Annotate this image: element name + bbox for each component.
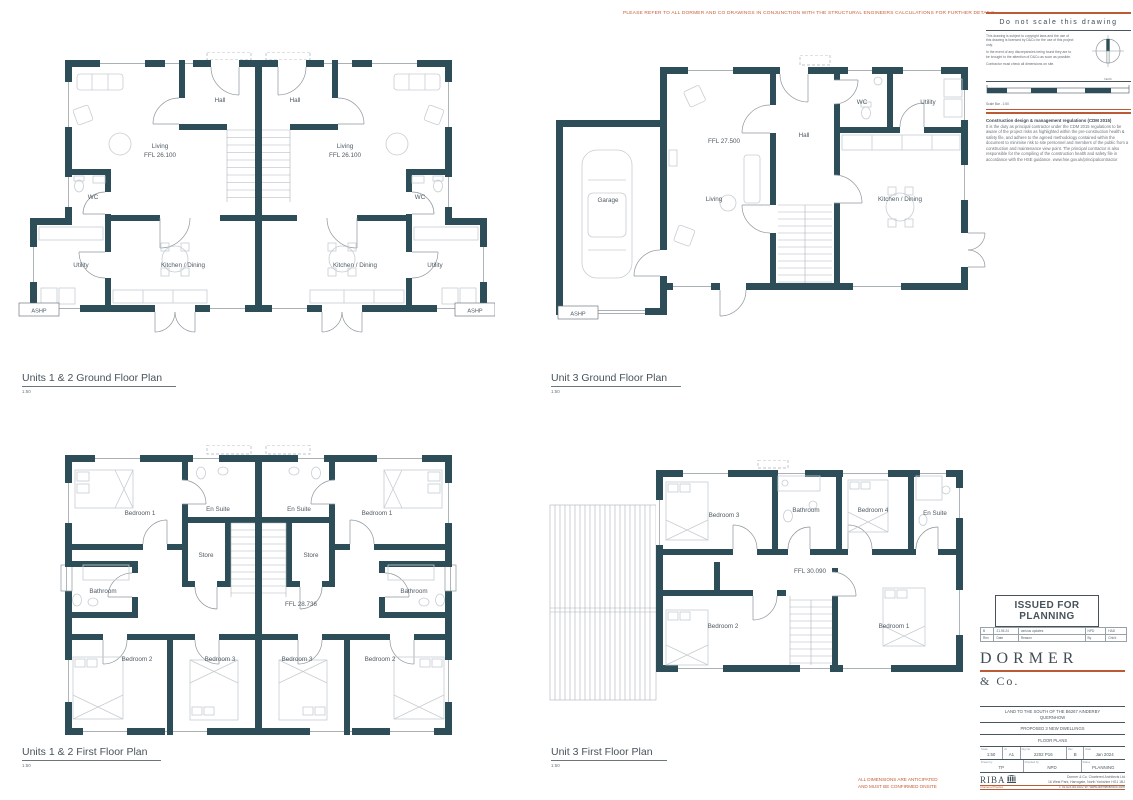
plan-units-1-2-ground-floor: ASHP ASHP Hall Living FFL 26.100 WC Util… (15, 52, 495, 337)
room-label: Living (337, 143, 354, 150)
room-label: Bathroom (400, 588, 427, 595)
project-info-table: LAND TO THE SOUTH OF THE B6267 AINDERBY … (980, 706, 1125, 793)
divider (986, 112, 1131, 113)
room-label: FFL 30.090 (794, 568, 826, 575)
discrepancy-note: In the event of any discrepancies being … (986, 50, 1074, 59)
room-label: Store (198, 552, 214, 559)
room-label: Utility (73, 262, 89, 269)
room-label: Bedroom 3 (282, 656, 313, 663)
copyright-note: This drawing is subject to copyright law… (986, 34, 1074, 47)
project-description: PROPOSED 3 NEW DWELLINGS (980, 723, 1125, 735)
crew-row: Drawn byTP Checked byNPD StatusPLANNING (980, 760, 1125, 773)
site-address: LAND TO THE SOUTH OF THE B6267 AINDERBY … (980, 707, 1125, 723)
plan-title-unit3-ground: Unit 3 Ground Floor Plan 1:50 (551, 368, 681, 394)
plan-title-units12-ground: Units 1 & 2 Ground Floor Plan 1:50 (22, 368, 176, 394)
room-label: Hall (799, 132, 810, 139)
room-label: FFL 27.500 (708, 138, 740, 145)
scale-bar-label: Scale Bar - 1:50 (986, 102, 1131, 106)
drawing-notes: This drawing is subject to copyright law… (986, 34, 1074, 81)
room-label: ASHP (467, 309, 483, 315)
revision-row: B 21.05.24 various updates NPD HAD (981, 628, 1126, 634)
cdm-body: It is the duty as principal contractor u… (986, 124, 1131, 162)
north-label: North (1085, 77, 1131, 81)
room-label: FFL 28.736 (285, 601, 317, 608)
room-label: En Suite (923, 510, 947, 517)
room-label: Bedroom 1 (879, 623, 910, 630)
room-label: Bedroom 2 (708, 623, 739, 630)
room-label: Bedroom 3 (205, 656, 236, 663)
plan-unit-3-first-floor: Bedroom 3 Bathroom Bedroom 4 En Suite FF… (548, 460, 978, 710)
room-label: En Suite (287, 506, 311, 513)
divider (986, 81, 1131, 82)
room-label: WC (415, 194, 426, 201)
room-label: Bedroom 4 (858, 507, 889, 514)
room-label: WC (857, 99, 868, 106)
room-label: Garage (597, 197, 619, 204)
issued-for-planning-stamp: ISSUED FOR PLANNING (995, 595, 1099, 627)
divider (986, 12, 1131, 14)
dimensions-note: Contractor must check all dimensions on … (986, 62, 1074, 66)
plan-title-units12-first: Units 1 & 2 First Floor Plan 1:50 (22, 742, 161, 768)
header-note: PLEASE REFER TO ALL DORMER AND CO DRAWIN… (623, 11, 1005, 16)
room-label: Bedroom 1 (125, 510, 156, 517)
room-label: En Suite (206, 506, 230, 513)
brand-name: DORMER (980, 650, 1125, 668)
company-logo: DORMER & Co. (980, 650, 1125, 689)
riba-portico-icon (1007, 775, 1016, 783)
room-label: Kitchen / Dining (161, 262, 206, 269)
room-label: Bedroom 2 (122, 656, 153, 663)
plan-unit-3-ground-floor: ASHP Garage FFL 27.500 Living Hall WC Ut… (548, 55, 988, 340)
room-label: Hall (215, 97, 226, 104)
room-label: FFL 26.100 (329, 152, 361, 159)
scale-bar (986, 85, 1131, 96)
room-label: Kitchen / Dining (878, 196, 923, 203)
room-label: Bedroom 2 (365, 656, 396, 663)
plan-title-unit3-first: Unit 3 First Floor Plan 1:50 (551, 742, 667, 768)
room-label: ASHP (570, 312, 586, 318)
drawing-sheet: PLEASE REFER TO ALL DORMER AND CO DRAWIN… (0, 0, 1133, 800)
room-label: Kitchen / Dining (333, 262, 378, 269)
room-label: Bathroom (89, 588, 116, 595)
room-label: Hall (290, 97, 301, 104)
do-not-scale-note: Do not scale this drawing (986, 19, 1131, 26)
room-label: Living (706, 196, 723, 203)
room-label: Bathroom (792, 507, 819, 514)
room-label: ASHP (31, 309, 47, 315)
room-label: Store (303, 552, 319, 559)
room-label: Utility (427, 262, 443, 269)
room-label: Bedroom 3 (709, 512, 740, 519)
divider (986, 30, 1131, 31)
plan-units-1-2-first-floor: Bedroom 1 En Suite Store Bathroom Bedroo… (15, 445, 495, 745)
brand-underline (980, 670, 1125, 672)
garage-roof-hatch (550, 505, 656, 700)
revision-header-row: Rev. Date Reason By Chk'd (981, 634, 1126, 641)
title-block-panel: Do not scale this drawing This drawing i… (980, 12, 1131, 798)
cdm-title: Construction design & management regulat… (986, 118, 1131, 123)
drawing-meta-row: Scale1:50 AtA1 Drg No.2202 P16 RevB Date… (980, 747, 1125, 760)
revision-table: B 21.05.24 various updates NPD HAD Rev. … (980, 627, 1127, 642)
room-label: WC (88, 194, 99, 201)
sheet-title: FLOOR PLANS (980, 735, 1125, 747)
brand-suffix: & Co. (980, 674, 1125, 689)
room-label: Utility (920, 99, 936, 106)
room-label: Bedroom 1 (362, 510, 393, 517)
footer-note: ALL DIMENSIONS ARE ANTICIPATED AND MUST … (858, 777, 988, 791)
bottom-rules (980, 785, 1125, 793)
room-label: Living (152, 143, 169, 150)
room-label: FFL 26.100 (144, 152, 176, 159)
north-arrow-icon: North (1085, 34, 1131, 81)
